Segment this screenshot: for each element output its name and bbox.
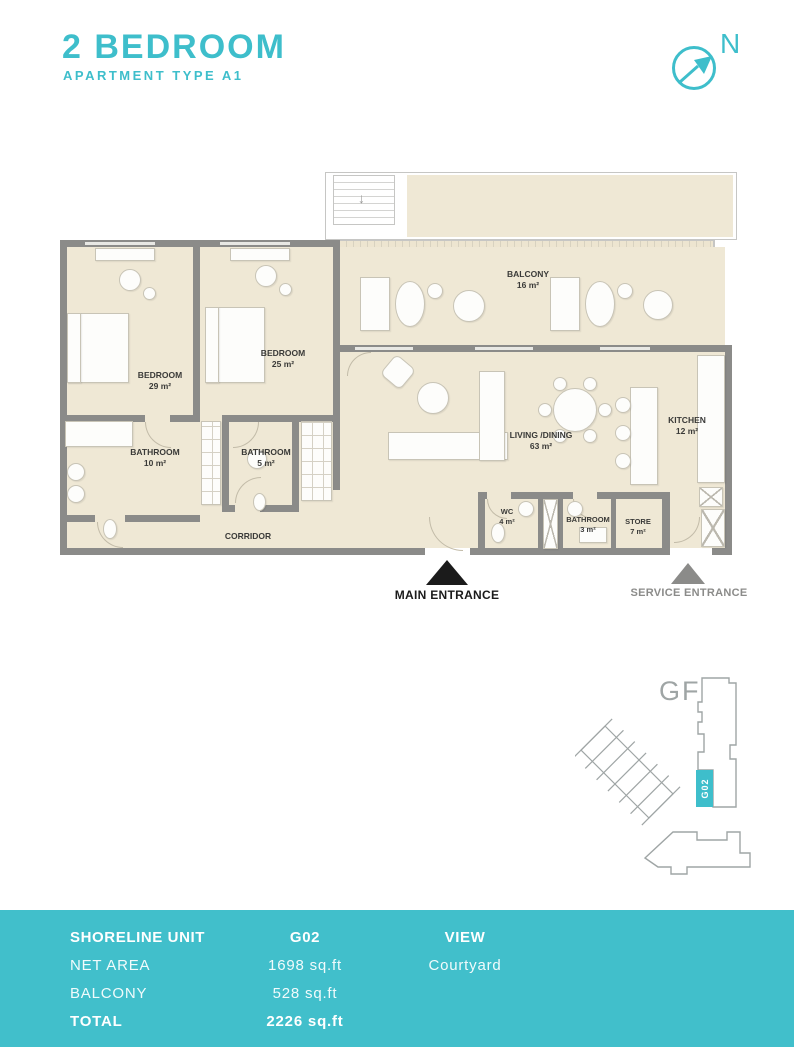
room-label-bathroom-2: BATHROOM 5 m² [241, 447, 290, 469]
summary-total-value: 2226 sq.ft [220, 1008, 390, 1036]
toilet-icon [103, 519, 117, 539]
wall-segment [478, 548, 670, 555]
lounger-icon [550, 277, 580, 331]
stair-icon: ↓ [333, 175, 395, 225]
dining-chair-icon [598, 403, 612, 417]
room-label-kitchen: KITCHEN 12 m² [668, 415, 706, 437]
summary-bar: SHORELINE UNIT G02 VIEW NET AREA 1698 sq… [0, 910, 794, 1047]
appliance-icon [701, 509, 725, 547]
key-plan-adjacent-building [575, 719, 680, 825]
wall-segment [60, 548, 425, 555]
summary-view-header: VIEW [390, 924, 540, 952]
wall-segment [170, 415, 200, 422]
coffee-table-icon [417, 382, 449, 414]
wall-segment [478, 492, 485, 555]
key-plan-unit-label: G02 [700, 778, 710, 798]
armchair-icon [119, 269, 141, 291]
sliding-door [475, 347, 533, 350]
wall-segment [333, 240, 340, 490]
side-table-icon [617, 283, 633, 299]
stair-arrow-icon: ↓ [358, 190, 365, 206]
appliance-icon [699, 487, 723, 507]
summary-view-value: Courtyard [390, 952, 540, 980]
side-table-icon [279, 283, 292, 296]
window [85, 242, 155, 245]
summary-table: SHORELINE UNIT G02 VIEW NET AREA 1698 sq… [70, 924, 540, 1036]
room-label-bathroom-1: BATHROOM 10 m² [130, 447, 179, 469]
room-label-corridor: CORRIDOR [225, 531, 271, 542]
wall-segment [611, 492, 616, 555]
room-label-store: STORE 7 m² [625, 517, 651, 537]
service-entrance-arrow-icon [671, 563, 705, 584]
service-entrance-label: SERVICE ENTRANCE [613, 587, 765, 599]
room-label-balcony: BALCONY 16 m² [507, 269, 549, 291]
sink-icon [518, 501, 534, 517]
summary-net-area-label: NET AREA [70, 952, 220, 980]
compass-north-label: N [720, 28, 740, 60]
sofa-icon [479, 371, 505, 461]
outdoor-table-icon [643, 290, 673, 320]
wall-segment [125, 515, 200, 522]
terrace-floor [407, 175, 733, 237]
wall-segment [193, 240, 200, 415]
stool-icon [615, 397, 631, 413]
side-table-icon [427, 283, 443, 299]
closet-icon [201, 421, 221, 505]
closet-icon [301, 421, 332, 501]
stool-icon [615, 425, 631, 441]
main-entrance-label: MAIN ENTRANCE [377, 588, 517, 602]
duct-shaft-icon [543, 499, 558, 549]
north-compass-icon: N [668, 30, 752, 100]
wall-segment [222, 415, 229, 510]
lounge-chair-icon [585, 281, 615, 327]
wall-segment [222, 415, 299, 422]
key-plan: GF G02 [575, 660, 780, 895]
summary-total-label: TOTAL [70, 1008, 220, 1036]
toilet-icon [253, 493, 266, 511]
lounger-icon [360, 277, 390, 331]
summary-unit-header: SHORELINE UNIT [70, 924, 220, 952]
dining-chair-icon [583, 429, 597, 443]
wardrobe-icon [230, 248, 290, 261]
wall-segment [222, 505, 235, 512]
wardrobe-icon [95, 248, 155, 261]
page-title: 2 BEDROOM [62, 28, 286, 67]
bathtub-icon [65, 421, 133, 447]
summary-unit-value: G02 [220, 924, 390, 952]
stool-icon [615, 453, 631, 469]
wall-segment [260, 505, 299, 512]
dining-chair-icon [538, 403, 552, 417]
dining-chair-icon [583, 377, 597, 391]
apartment-type-subtitle: APARTMENT TYPE A1 [63, 68, 243, 83]
armchair-icon [255, 265, 277, 287]
dining-chair-icon [553, 377, 567, 391]
side-table-icon [143, 287, 156, 300]
bed-pillow-icon [67, 313, 81, 383]
sliding-door [600, 347, 650, 350]
dining-table-icon [553, 388, 597, 432]
wall-segment [60, 240, 67, 555]
wall-segment [60, 515, 95, 522]
bed-pillow-icon [205, 307, 219, 383]
room-label-bedroom-1: BEDROOM 29 m² [138, 370, 182, 392]
wall-segment [558, 492, 563, 555]
key-plan-lower-building [645, 832, 750, 874]
room-label-wc: WC 4 m² [499, 507, 514, 527]
summary-balcony-label: BALCONY [70, 980, 220, 1008]
lounge-chair-icon [395, 281, 425, 327]
wall-segment [470, 548, 478, 555]
sink-icon [67, 485, 85, 503]
kitchen-island-icon [630, 387, 658, 485]
wall-segment [662, 492, 670, 555]
wall-segment [292, 415, 299, 510]
window [220, 242, 290, 245]
main-entrance-arrow-icon [426, 560, 468, 585]
room-label-bedroom-2: BEDROOM 25 m² [261, 348, 305, 370]
floor-plan: ↓ [55, 165, 745, 610]
key-plan-floor-label: GF [659, 676, 701, 706]
summary-net-area-value: 1698 sq.ft [220, 952, 390, 980]
outdoor-table-icon [453, 290, 485, 322]
summary-balcony-value: 528 sq.ft [220, 980, 390, 1008]
sink-icon [67, 463, 85, 481]
sliding-door [355, 347, 413, 350]
room-label-bathroom-3: BATHROOM 3 m² [566, 515, 610, 535]
wall-segment [725, 348, 732, 555]
room-label-living-dining: LIVING /DINING 63 m² [510, 430, 573, 452]
brochure-page: 2 BEDROOM APARTMENT TYPE A1 N ↓ [0, 0, 794, 1047]
wall-segment [597, 492, 670, 499]
